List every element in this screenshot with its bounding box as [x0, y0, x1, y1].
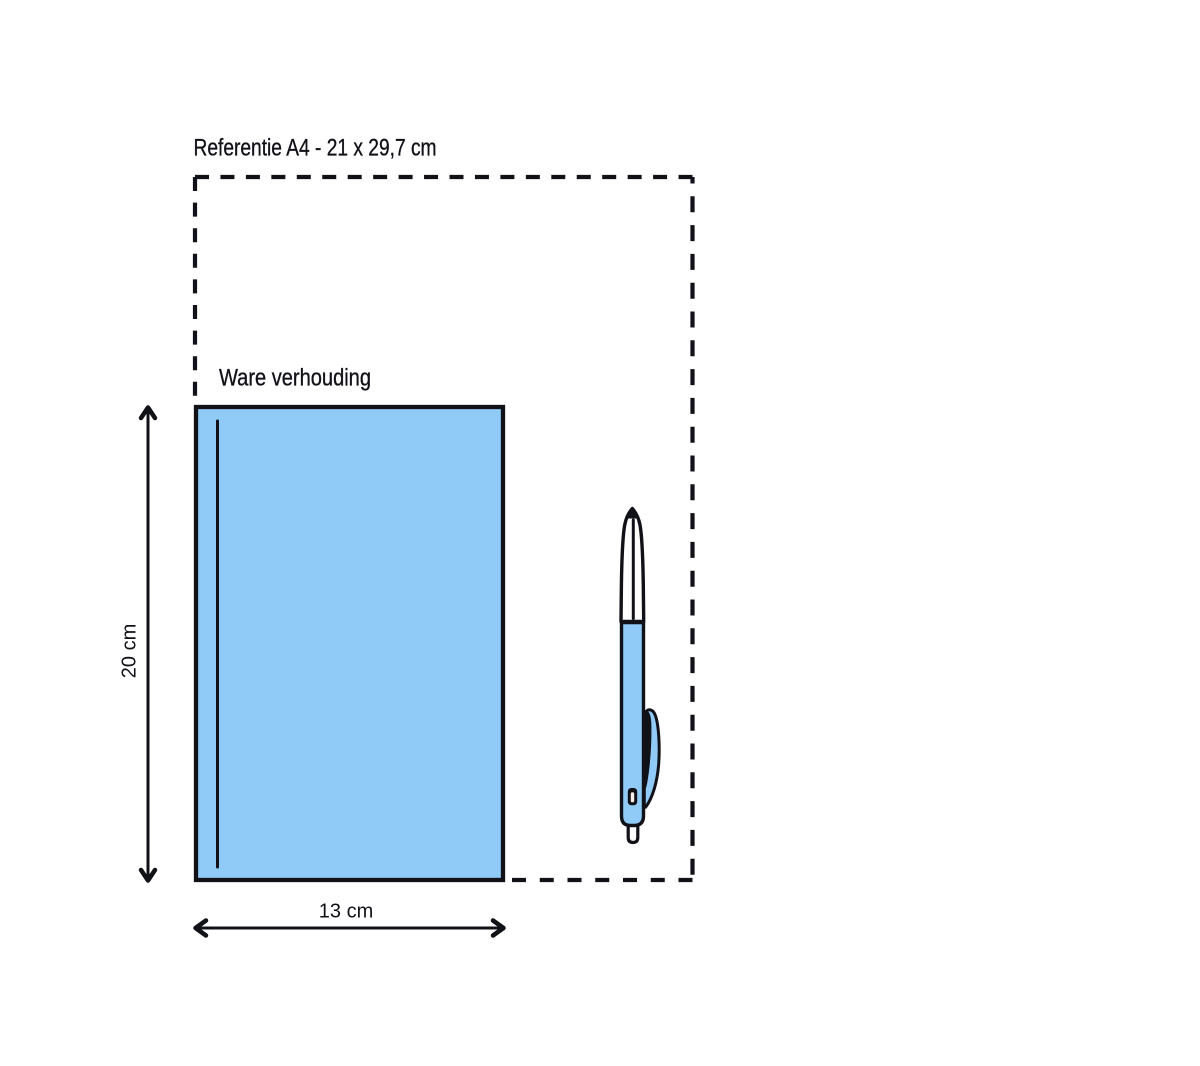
svg-text:Ware verhouding: Ware verhouding — [219, 365, 371, 392]
svg-text:Referentie A4 - 21 x 29,7 cm: Referentie A4 - 21 x 29,7 cm — [194, 135, 437, 162]
svg-text:13 cm: 13 cm — [319, 901, 373, 923]
svg-text:20 cm: 20 cm — [119, 624, 141, 678]
